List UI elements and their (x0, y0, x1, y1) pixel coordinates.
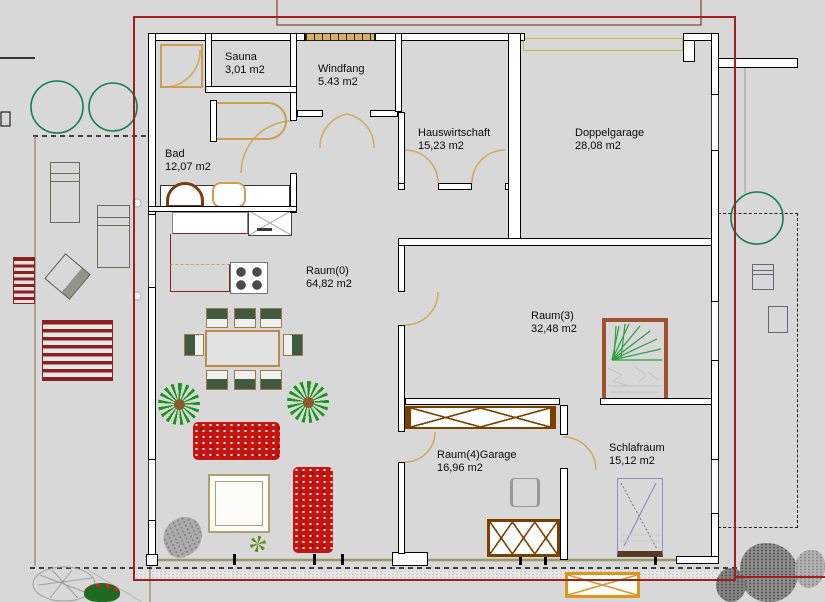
flower-bush (84, 583, 120, 602)
terrace-side-table (768, 306, 788, 333)
room-name: Hauswirtschaft (418, 127, 490, 140)
room-area: 5.43 m2 (318, 76, 364, 89)
room-area: 16,96 m2 (437, 462, 516, 475)
room-label-raum0: Raum(0) 64,82 m2 (306, 265, 352, 290)
striped-armchair (13, 257, 35, 304)
room-name: Raum(4)Garage (437, 449, 516, 462)
floorplan-canvas: Sauna 3,01 m2 Windfang 5.43 m2 Hauswirts… (0, 0, 825, 602)
room-area: 3,01 m2 (225, 64, 265, 77)
room-area: 32,48 m2 (531, 323, 577, 336)
tree-icon (31, 81, 83, 133)
room-label-raum4garage: Raum(4)Garage 16,96 m2 (437, 449, 516, 474)
tree-icon (731, 192, 783, 244)
room-label-windfang: Windfang 5.43 m2 (318, 63, 364, 88)
room-area: 28,08 m2 (575, 140, 644, 153)
terrace-lounger (752, 264, 774, 290)
room-name: Raum(0) (306, 265, 352, 278)
room-name: Bad (165, 148, 211, 161)
room-label-bad: Bad 12,07 m2 (165, 148, 211, 173)
room-label-hauswirtschaft: Hauswirtschaft 15,23 m2 (418, 127, 490, 152)
room-label-schlafraum: Schlafraum 15,12 m2 (609, 442, 665, 467)
room-name: Schlafraum (609, 442, 665, 455)
room-name: Windfang (318, 63, 364, 76)
room-name: Raum(3) (531, 310, 577, 323)
picnic-bench (42, 320, 113, 381)
room-area: 15,12 m2 (609, 455, 665, 468)
sun-lounger (50, 162, 80, 223)
room-name: Doppelgarage (575, 127, 644, 140)
off-canvas-box (1, 112, 10, 126)
property-boundary-extension (736, 576, 825, 578)
room-label-raum3: Raum(3) 32,48 m2 (531, 310, 577, 335)
room-name: Sauna (225, 51, 265, 64)
property-boundary (133, 16, 736, 581)
room-area: 15,23 m2 (418, 140, 490, 153)
tree-icon (89, 83, 137, 131)
rock (740, 543, 798, 602)
room-area: 64,82 m2 (306, 278, 352, 291)
room-label-doppelgarage: Doppelgarage 28,08 m2 (575, 127, 644, 152)
room-label-sauna: Sauna 3,01 m2 (225, 51, 265, 76)
sun-lounger (97, 205, 130, 268)
room-area: 12,07 m2 (165, 161, 211, 174)
